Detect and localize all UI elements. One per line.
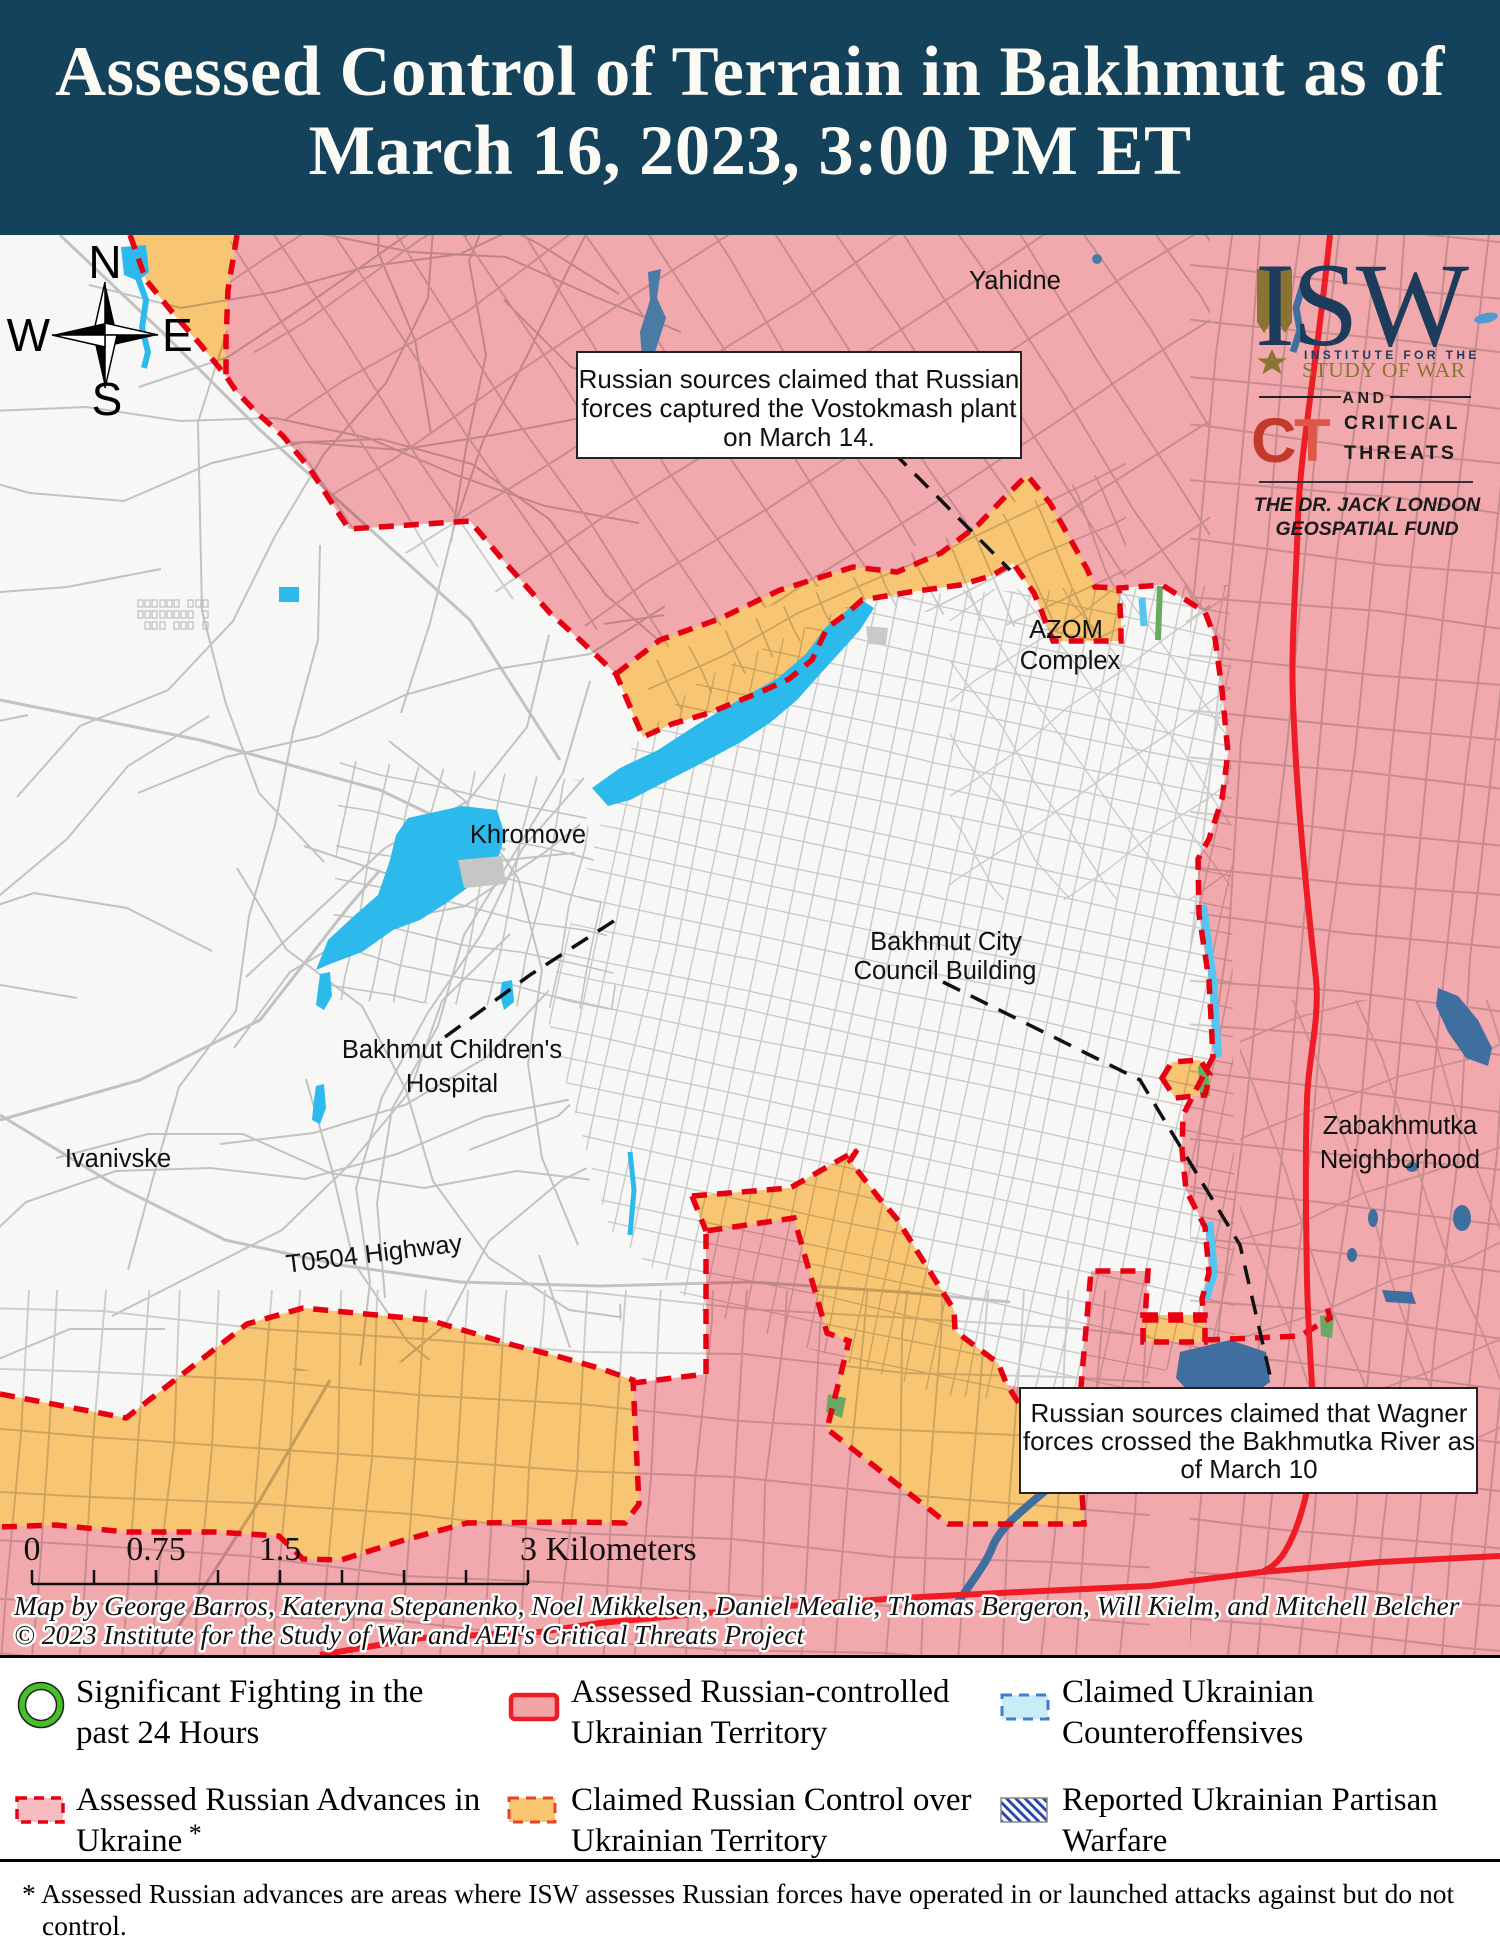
svg-text:AZOM: AZOM: [1029, 616, 1103, 644]
svg-text:Russian sources claimed that R: Russian sources claimed that Russian: [579, 364, 1020, 394]
svg-text:1.5: 1.5: [259, 1531, 302, 1568]
svg-text:GEOSPATIAL FUND: GEOSPATIAL FUND: [1275, 518, 1458, 540]
svg-text:AND: AND: [1342, 390, 1387, 407]
svg-text:Map by George Barros, Kateryna: Map by George Barros, Kateryna Stepanenk…: [13, 1590, 1460, 1621]
svg-text:C: C: [1251, 406, 1297, 476]
svg-text:0.75: 0.75: [126, 1531, 186, 1568]
svg-text:S: S: [92, 373, 123, 425]
svg-text:T: T: [1294, 407, 1331, 474]
svg-text:3 Kilometers: 3 Kilometers: [520, 1531, 697, 1568]
svg-text:Ivanivske: Ivanivske: [65, 1145, 171, 1173]
svg-text:CRITICAL: CRITICAL: [1344, 412, 1461, 434]
svg-text:Zabakhmutka: Zabakhmutka: [1323, 1112, 1478, 1140]
svg-text:N: N: [88, 236, 121, 288]
svg-text:THREATS: THREATS: [1344, 442, 1457, 464]
svg-text:W: W: [7, 309, 51, 361]
svg-text:© 2023 Institute for the Study: © 2023 Institute for the Study of War an…: [14, 1619, 805, 1650]
svg-text:Bakhmut City: Bakhmut City: [870, 928, 1022, 956]
svg-text:forces captured the Vostokmash: forces captured the Vostokmash plant: [581, 393, 1017, 423]
svg-text:Complex: Complex: [1020, 647, 1121, 675]
svg-text:E: E: [162, 309, 193, 361]
svg-text:Bakhmut Children's: Bakhmut Children's: [342, 1036, 562, 1064]
svg-text:STUDY OF WAR: STUDY OF WAR: [1302, 358, 1466, 382]
svg-text:Yahidne: Yahidne: [969, 267, 1061, 295]
svg-text:0: 0: [24, 1531, 41, 1568]
svg-text:of March 10: of March 10: [1180, 1454, 1317, 1484]
svg-text:Council Building: Council Building: [854, 957, 1037, 985]
svg-text:Hospital: Hospital: [406, 1070, 498, 1098]
svg-text:Neighborhood: Neighborhood: [1320, 1146, 1480, 1174]
svg-text:THE DR. JACK LONDON: THE DR. JACK LONDON: [1254, 494, 1481, 516]
svg-text:Khromove: Khromove: [470, 821, 586, 849]
svg-text:on March 14.: on March 14.: [723, 422, 875, 452]
svg-text:Russian sources claimed that W: Russian sources claimed that Wagner: [1031, 1398, 1468, 1428]
svg-text:forces crossed the Bakhmutka R: forces crossed the Bakhmutka River as: [1023, 1426, 1475, 1456]
